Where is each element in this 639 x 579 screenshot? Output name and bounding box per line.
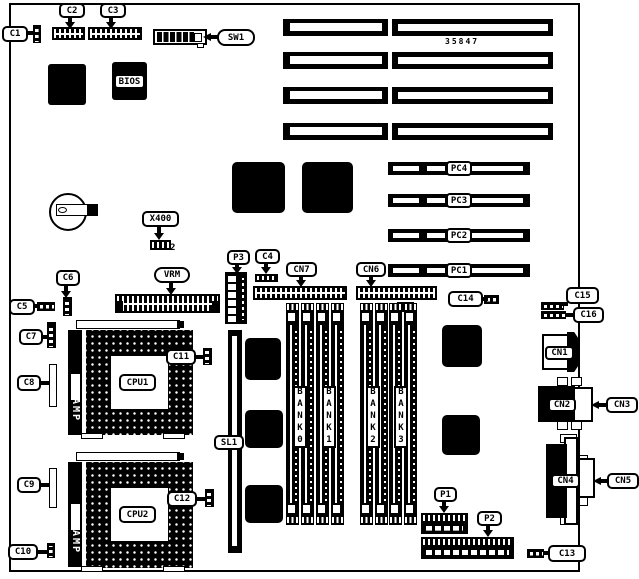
- p3-pin-3: [228, 292, 236, 298]
- c4-header: [255, 274, 278, 282]
- cpu2-foot-left: [81, 566, 103, 572]
- c12-component: [205, 489, 214, 507]
- cn5-arrowhead: [593, 477, 601, 485]
- qfp-ic-2: [302, 162, 353, 213]
- cn6-callout: CN6: [356, 262, 386, 277]
- cn5-callout: CN5: [607, 473, 639, 489]
- c5-component: [37, 302, 55, 311]
- motherboard-diagram: 35847 PC4 PC3 PC2 PC1 BIOS 2: [0, 0, 639, 579]
- cn3-arrowhead: [591, 401, 599, 409]
- c1-pointer: [27, 31, 34, 35]
- cache-ic-2: [245, 410, 283, 448]
- cn2-tab-top-left: [557, 377, 568, 386]
- p2-arrowhead: [483, 530, 493, 537]
- c9-callout: C9: [17, 477, 41, 493]
- c10-component: [47, 543, 55, 558]
- isa-slot-2-right-opening: [398, 57, 548, 64]
- cn6-arrowhead: [366, 280, 376, 287]
- pc4-opening-1: [393, 166, 419, 171]
- c7-callout: C7: [19, 329, 43, 345]
- qfp-ic-1: [232, 162, 285, 213]
- c7-pointer: [42, 335, 49, 339]
- c6-callout: C6: [56, 270, 80, 286]
- c3-callout: C3: [100, 3, 126, 18]
- io-ic-1: [442, 325, 482, 367]
- c9-component: [49, 468, 57, 508]
- c9-pointer: [40, 483, 50, 487]
- pc3-opening-1: [393, 198, 419, 203]
- amp2-window: [71, 504, 80, 530]
- amp2-label: AMP: [69, 529, 81, 555]
- isa-slot-2-left-opening: [290, 56, 382, 64]
- p3-pin-6: [228, 316, 236, 322]
- pc3-opening-3: [472, 198, 523, 203]
- cpu1-foot-left: [81, 433, 103, 439]
- sw1-arrowhead: [203, 33, 211, 41]
- p1-callout: P1: [434, 487, 457, 502]
- p2-callout: P2: [477, 511, 502, 526]
- isa-slot-4-left-opening: [290, 127, 382, 135]
- c4-arrowhead: [261, 267, 271, 274]
- c13-component: [527, 549, 544, 558]
- bank3-label: BANK3: [394, 386, 408, 448]
- cn7-header: [253, 286, 347, 300]
- c4-callout: C4: [255, 249, 280, 264]
- c12-callout: C12: [167, 491, 197, 507]
- cn7-arrowhead: [296, 280, 306, 287]
- isa-slot-1-right-opening: [398, 24, 548, 31]
- c11-callout: C11: [166, 349, 196, 365]
- sl1-callout: SL1: [214, 435, 244, 450]
- cn2-tab-bottom-left: [557, 421, 568, 430]
- sw1-switch-cells: [157, 32, 194, 42]
- battery-clip-pivot: [58, 207, 67, 213]
- cn7-callout: CN7: [286, 262, 317, 277]
- c13-callout: C13: [548, 545, 586, 562]
- cpu2-top-bar-tab: [177, 453, 184, 460]
- p3-pin-2: [228, 284, 236, 290]
- x400-callout: X400: [142, 211, 179, 227]
- c10-callout: C10: [8, 544, 38, 560]
- isa-slot-3-right-opening: [398, 92, 548, 99]
- pc3-label: PC3: [446, 193, 472, 208]
- bank2-label: BANK2: [366, 386, 380, 448]
- x400-header: [150, 240, 171, 250]
- p3-pin-4: [228, 300, 236, 306]
- pc1-opening-1: [393, 268, 419, 273]
- p1-arrowhead: [439, 506, 449, 513]
- vrm-end-cap-right: [212, 301, 220, 313]
- cn6-header: [356, 286, 437, 300]
- c8-pointer: [40, 381, 50, 385]
- pc1-opening-2: [427, 268, 445, 273]
- pc2-opening-3: [472, 233, 523, 238]
- cpu2-top-bar: [76, 452, 180, 461]
- p3-callout: P3: [227, 250, 250, 265]
- pc1-opening-3: [472, 268, 523, 273]
- c8-component: [49, 364, 57, 407]
- vrm-end-cap-left: [115, 301, 123, 313]
- bank0-label: BANK0: [293, 386, 307, 448]
- p3-arrowhead: [232, 267, 242, 274]
- c8-callout: C8: [17, 375, 41, 391]
- pc2-opening-2: [427, 233, 445, 238]
- pc2-opening-1: [393, 233, 419, 238]
- battery-clip-tip: [87, 205, 97, 215]
- p1-connector-body: [421, 522, 468, 534]
- vrm-header: [115, 294, 220, 313]
- sw1-notch: [197, 43, 204, 48]
- c1-component: [33, 25, 41, 43]
- cn4-label: CN4: [551, 474, 580, 488]
- isa-slot-3-left-opening: [290, 91, 382, 99]
- cn1-label: CN1: [545, 346, 574, 360]
- c14-callout: C14: [448, 291, 483, 307]
- pc4-opening-3: [472, 166, 523, 171]
- cn3-callout: CN3: [606, 397, 638, 413]
- cache-ic-1: [245, 338, 281, 380]
- pc3-opening-2: [427, 198, 445, 203]
- pc1-label: PC1: [446, 263, 472, 278]
- c15-callout: C15: [566, 287, 599, 304]
- c3-arrowhead: [106, 22, 116, 29]
- io-ic-2: [442, 415, 480, 455]
- isa-slot-4-right-opening: [398, 128, 548, 135]
- sw1-callout: SW1: [217, 29, 255, 46]
- x400-pin2-label: 2: [170, 243, 175, 253]
- pc4-opening-2: [427, 166, 445, 171]
- c10-pointer: [37, 550, 48, 554]
- chipset-ic-top-left: [48, 64, 86, 105]
- c11-pointer: [195, 355, 204, 359]
- c5-callout: C5: [9, 299, 35, 315]
- amp1-label: AMP: [69, 397, 81, 423]
- isa-slot-1-left-opening: [290, 23, 382, 31]
- pc2-label: PC2: [446, 228, 472, 243]
- cpu2-foot-right: [163, 566, 185, 572]
- p3-pin-1: [228, 276, 236, 282]
- cache-ic-3: [245, 485, 283, 523]
- c6-arrowhead: [61, 291, 71, 298]
- cn2-tab-top-right: [571, 377, 582, 386]
- bank1-label: BANK1: [322, 386, 336, 448]
- c11-component: [203, 348, 212, 365]
- sw1-last-cell: [194, 33, 202, 42]
- x400-arrowhead: [154, 233, 164, 240]
- c2-callout: C2: [59, 3, 85, 18]
- c2-arrowhead: [65, 22, 75, 29]
- cn2-tab-bottom-right: [571, 421, 582, 430]
- p3-pin-5: [228, 308, 236, 314]
- c1-callout: C1: [2, 26, 28, 42]
- cpu1-label: CPU1: [119, 374, 156, 391]
- p2-connector-body: [421, 546, 514, 559]
- cpu2-label: CPU2: [119, 506, 156, 523]
- vrm-arrowhead: [166, 288, 176, 295]
- board-part-number: 35847: [445, 37, 479, 46]
- bios-label: BIOS: [114, 74, 145, 89]
- cpu1-top-bar: [76, 320, 180, 329]
- cn2-label: CN2: [548, 398, 576, 412]
- c12-pointer: [196, 497, 206, 501]
- cn3-din-connector: [573, 387, 593, 422]
- pc4-label: PC4: [446, 161, 472, 176]
- c16-component: [541, 311, 566, 319]
- cpu1-foot-right: [163, 433, 185, 439]
- cpu1-top-bar-tab: [177, 321, 184, 328]
- c6-component: [63, 297, 72, 316]
- vrm-callout: VRM: [154, 267, 190, 283]
- p3-pin-column: [240, 275, 246, 321]
- c16-callout: C16: [573, 307, 604, 323]
